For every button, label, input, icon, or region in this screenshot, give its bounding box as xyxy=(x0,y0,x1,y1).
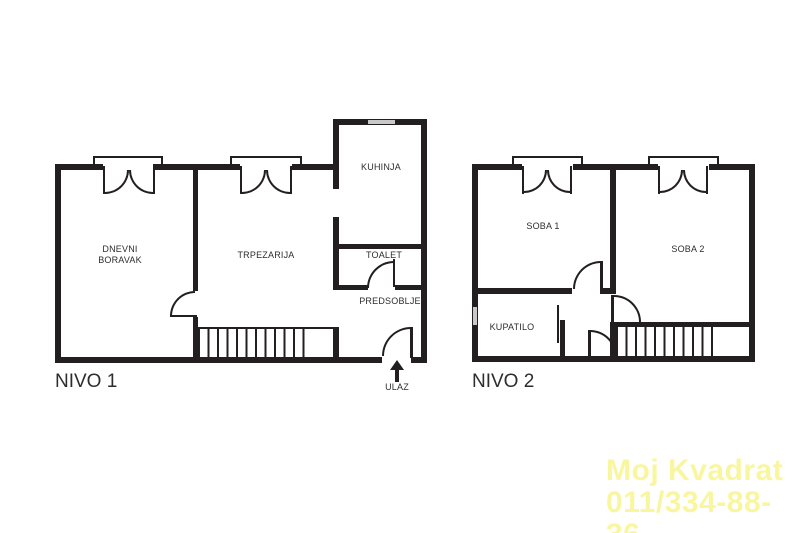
door-swing-icon xyxy=(683,170,706,193)
door-leaf xyxy=(706,166,708,194)
watermark-company: Moj Kvadrat xyxy=(606,455,800,487)
door-swing-icon xyxy=(660,170,683,193)
room-label-room1: SOBA 1 xyxy=(508,221,578,232)
door-swing-icon xyxy=(547,170,570,193)
door-swing-icon xyxy=(524,170,547,193)
door-swing-icon xyxy=(614,295,641,322)
wall xyxy=(749,164,755,362)
door-swing-icon xyxy=(573,261,601,289)
bathroom-window-icon xyxy=(473,307,477,325)
watermark: Moj Kvadrat 011/334-88-36 xyxy=(606,455,800,533)
bathroom-door-leaf xyxy=(557,305,559,343)
room-label-room2: SOBA 2 xyxy=(653,244,723,255)
room-label-bathroom: KUPATILO xyxy=(482,322,542,333)
wall-bathroom-right xyxy=(560,320,565,356)
watermark-phone: 011/334-88-36 xyxy=(606,487,800,533)
stairs-icon xyxy=(616,327,720,356)
wall xyxy=(472,164,478,362)
level-2-title: NIVO 2 xyxy=(472,371,612,393)
door-leaf xyxy=(570,166,572,194)
wall-room1-divider xyxy=(472,288,572,294)
wall-center xyxy=(610,164,616,292)
floor-plan-canvas: DNEVNI BORAVAK TRPEZARIJA KUHINJA TOALET… xyxy=(0,0,800,533)
